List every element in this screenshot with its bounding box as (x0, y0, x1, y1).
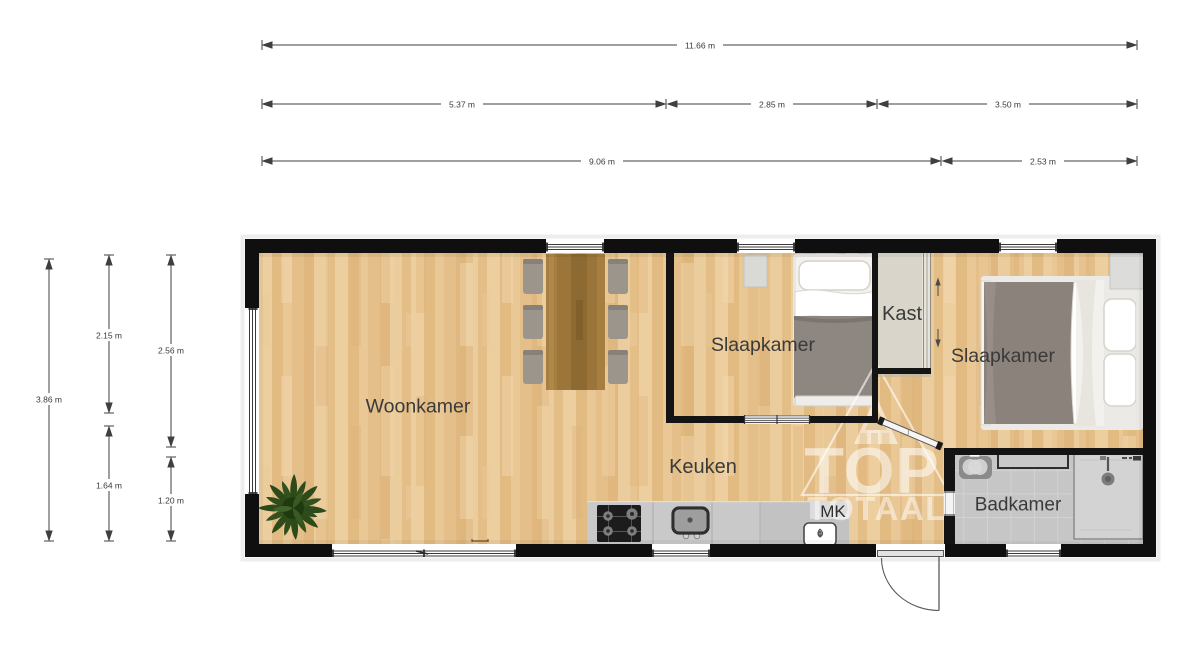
svg-text:Badkamer: Badkamer (975, 495, 1062, 516)
svg-text:5.37 m: 5.37 m (449, 100, 475, 110)
svg-text:3.86 m: 3.86 m (36, 395, 62, 405)
svg-text:Slaapkamer: Slaapkamer (711, 334, 816, 356)
svg-text:Slaapkamer: Slaapkamer (951, 345, 1056, 367)
svg-text:2.56 m: 2.56 m (158, 346, 184, 356)
svg-text:11.66 m: 11.66 m (685, 41, 715, 51)
svg-text:3.50 m: 3.50 m (995, 100, 1021, 110)
svg-text:MK: MK (820, 502, 846, 521)
svg-text:Kast: Kast (882, 303, 922, 325)
svg-text:Woonkamer: Woonkamer (366, 396, 471, 418)
svg-text:2.85 m: 2.85 m (759, 100, 785, 110)
svg-text:9.06 m: 9.06 m (589, 157, 615, 167)
svg-text:Keuken: Keuken (669, 456, 737, 478)
svg-text:2.15 m: 2.15 m (96, 331, 122, 341)
svg-text:1.64 m: 1.64 m (96, 481, 122, 491)
svg-text:2.53 m: 2.53 m (1030, 157, 1056, 167)
svg-text:1.20 m: 1.20 m (158, 496, 184, 506)
